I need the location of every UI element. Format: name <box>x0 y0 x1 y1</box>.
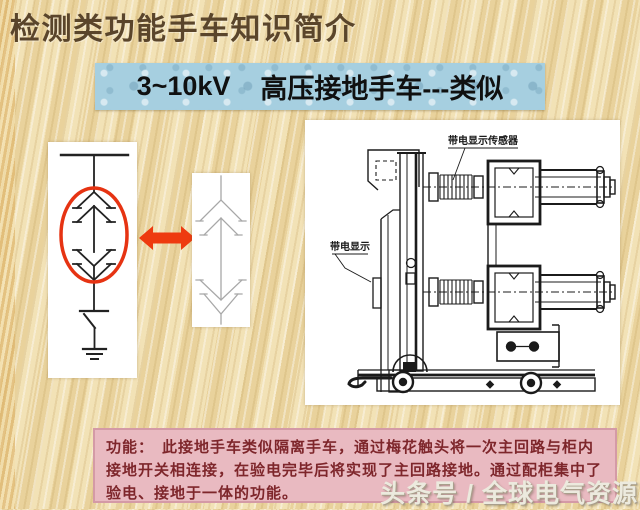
watermark: 头条号 / 全球电气资源 <box>380 474 638 510</box>
grounding-switch-schematic <box>48 142 137 378</box>
section-banner: 3~10kV 高压接地手车---类似 <box>95 63 545 110</box>
display-label: 带电显示 <box>330 240 370 253</box>
technical-drawing-panel: 带电显示传感器 带电显示 <box>305 120 620 405</box>
contact-symbol-panel <box>192 173 250 327</box>
function-heading: 功能： <box>106 439 154 456</box>
schematic-panel <box>48 142 137 378</box>
sensor-label: 带电显示传感器 <box>448 134 519 147</box>
left-texture-band <box>0 0 15 509</box>
equivalence-arrow <box>139 224 195 252</box>
plug-contact-symbol <box>192 173 250 327</box>
handcart-technical-drawing: 带电显示传感器 带电显示 <box>305 120 620 405</box>
page-title: 检测类功能手车知识简介 <box>10 4 357 48</box>
banner-voltage: 3~10kV <box>137 71 231 102</box>
double-arrow-icon <box>139 224 195 252</box>
banner-label: 高压接地手车---类似 <box>260 67 503 106</box>
